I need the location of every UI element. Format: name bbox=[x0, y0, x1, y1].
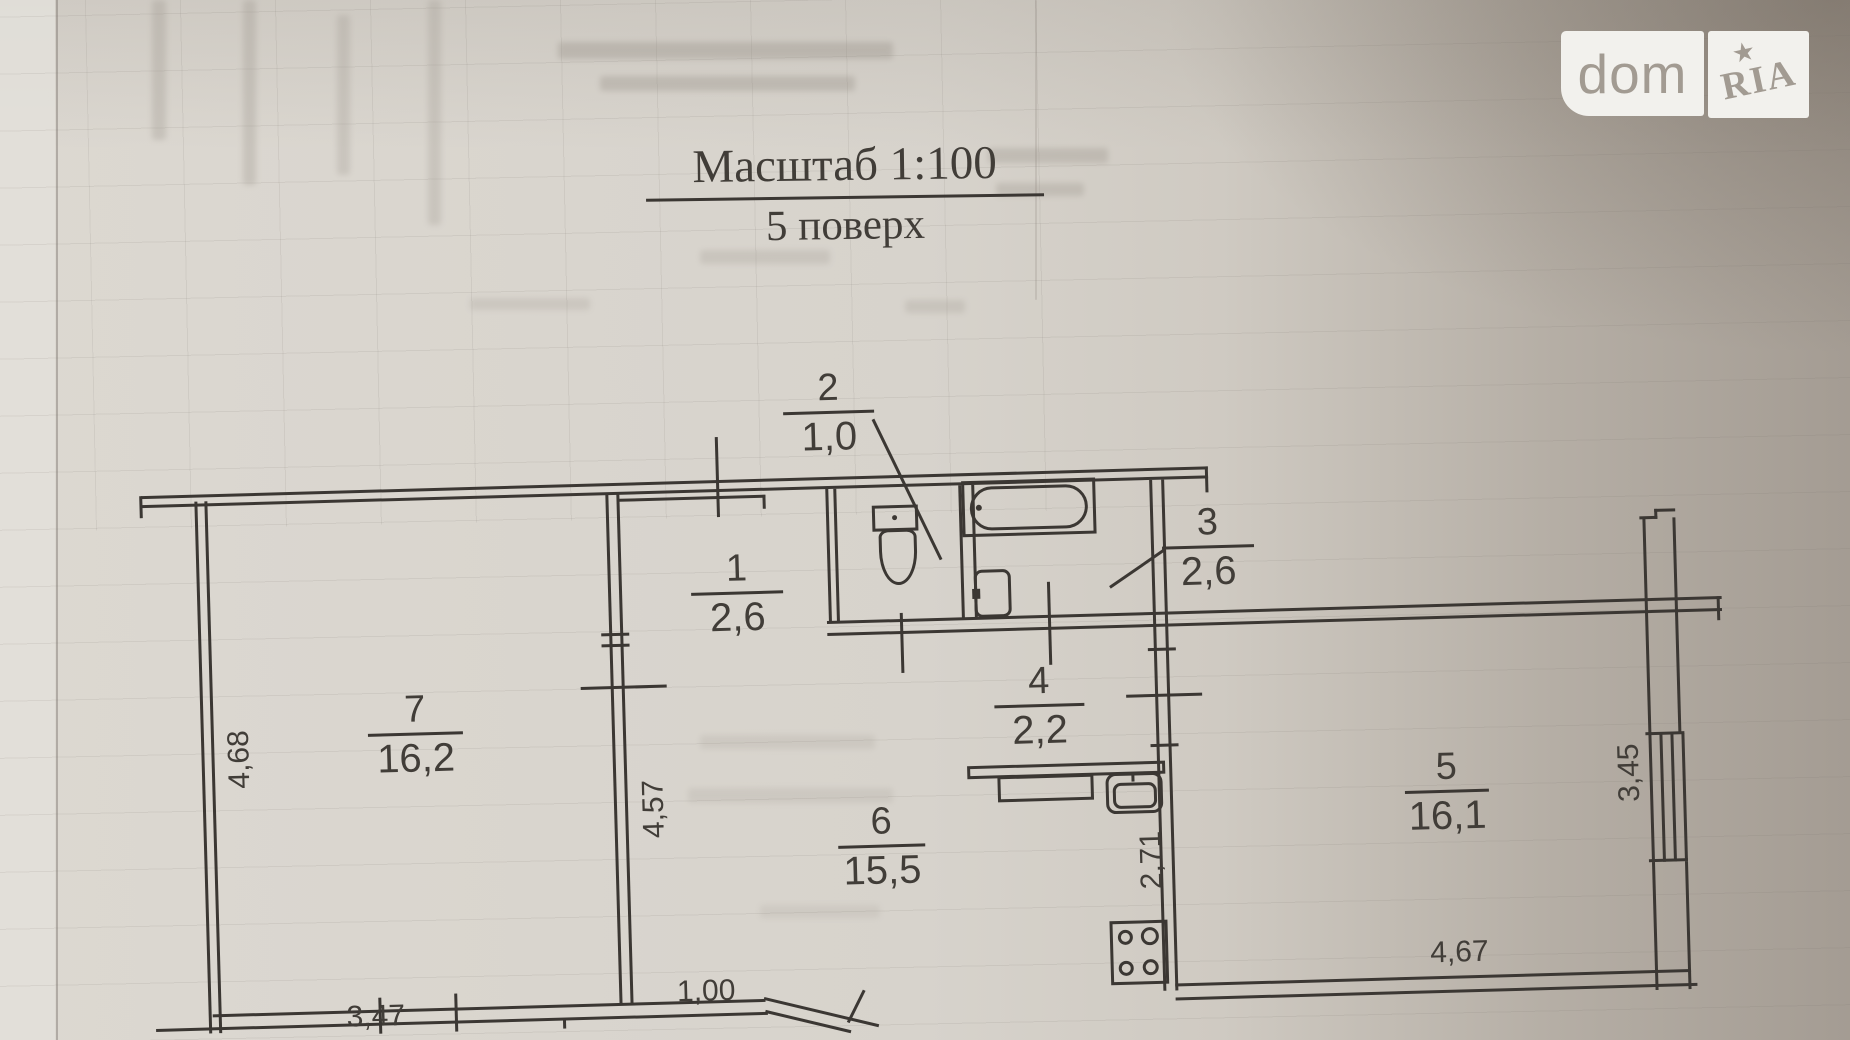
room-area: 1,0 bbox=[801, 416, 858, 458]
dimension-tick bbox=[715, 437, 720, 517]
room-label-5: 5 16,1 bbox=[1404, 747, 1490, 837]
room-number: 5 bbox=[1435, 748, 1457, 787]
dom-logo-text: dom bbox=[1578, 42, 1688, 106]
leader-line bbox=[1109, 549, 1165, 589]
room-number: 1 bbox=[725, 549, 747, 588]
wall-notch bbox=[1654, 508, 1675, 512]
dimension-bottom-right: 4,67 bbox=[1416, 934, 1503, 970]
floor-plan: 1 2,6 2 1,0 3 2,6 4 2,2 5 16,1 6 bbox=[0, 0, 1850, 1040]
wall-segment bbox=[1642, 518, 1651, 734]
dimension-tick bbox=[563, 1018, 566, 1028]
scanned-floor-plan-page: Масштаб 1:100 5 поверх bbox=[0, 0, 1850, 1040]
dimension-tick bbox=[1126, 693, 1202, 698]
room-label-7: 7 16,2 bbox=[367, 689, 464, 780]
room-area: 15,5 bbox=[843, 850, 922, 892]
wall-joint-tick bbox=[1151, 743, 1179, 747]
room-label-6: 6 15,5 bbox=[837, 801, 926, 891]
room-area: 2,2 bbox=[1012, 709, 1069, 751]
wall-joint-tick bbox=[1148, 647, 1176, 651]
room-number: 4 bbox=[1028, 662, 1050, 701]
wall-segment bbox=[762, 495, 765, 509]
room-label-1: 1 2,6 bbox=[690, 548, 784, 639]
toilet-icon bbox=[892, 515, 897, 520]
room-area: 2,6 bbox=[1180, 551, 1237, 593]
wall-segment bbox=[833, 489, 840, 623]
wall-end-hook bbox=[1205, 466, 1209, 492]
room-area: 16,1 bbox=[1408, 795, 1487, 837]
kitchen-sink-icon bbox=[1131, 773, 1134, 782]
dimension-bottom-left: 3,47 bbox=[332, 999, 419, 1035]
dimension-right-height: 3,45 bbox=[1611, 730, 1643, 815]
room-number: 2 bbox=[817, 369, 839, 408]
wall-segment bbox=[1672, 517, 1681, 733]
door-opening-tick bbox=[1047, 582, 1052, 665]
wall-end-hook bbox=[1717, 596, 1721, 620]
ria-logo-text: RIA bbox=[1717, 50, 1800, 109]
bathtub-icon bbox=[969, 484, 1088, 531]
room-number: 6 bbox=[870, 802, 892, 841]
wash-basin-icon bbox=[972, 589, 980, 599]
ria-logo: ★ RIA bbox=[1708, 31, 1809, 118]
room-label-3: 3 2,6 bbox=[1161, 502, 1255, 593]
room-area: 2,6 bbox=[709, 597, 766, 639]
wall-segment bbox=[619, 495, 765, 502]
window-icon bbox=[1659, 734, 1666, 862]
kitchen-sink-icon bbox=[1113, 782, 1158, 809]
window-icon bbox=[1681, 733, 1688, 861]
wall-segment bbox=[1175, 969, 1691, 986]
wall-end-hook bbox=[139, 496, 143, 518]
toilet-icon bbox=[878, 529, 918, 586]
domria-watermark: dom ★ RIA bbox=[1561, 31, 1809, 118]
dimension-tick bbox=[454, 994, 458, 1032]
dimension-mid-height: 4,57 bbox=[636, 767, 668, 852]
wall-segment bbox=[1176, 983, 1698, 1001]
wall-joint-tick bbox=[602, 644, 630, 648]
wall-segment bbox=[825, 489, 832, 623]
wall-joint-tick bbox=[601, 633, 629, 637]
window-icon bbox=[1670, 733, 1677, 861]
door-opening-tick bbox=[900, 613, 905, 673]
room-label-4: 4 2,2 bbox=[993, 661, 1085, 751]
room-number: 3 bbox=[1196, 503, 1218, 542]
room-number: 7 bbox=[404, 690, 426, 729]
room-label-2: 2 1,0 bbox=[782, 368, 875, 459]
window-icon bbox=[1645, 731, 1684, 735]
stove-icon bbox=[1109, 920, 1169, 986]
dimension-left-height: 4,68 bbox=[221, 717, 253, 802]
kitchen-counter-icon bbox=[997, 774, 1094, 803]
room-area: 16,2 bbox=[377, 737, 456, 779]
window-icon bbox=[1648, 734, 1655, 862]
dom-logo: dom bbox=[1561, 31, 1704, 116]
dimension-bottom-mid: 1,00 bbox=[667, 973, 746, 1009]
dimension-kitchen-height: 2,71 bbox=[1134, 818, 1166, 903]
